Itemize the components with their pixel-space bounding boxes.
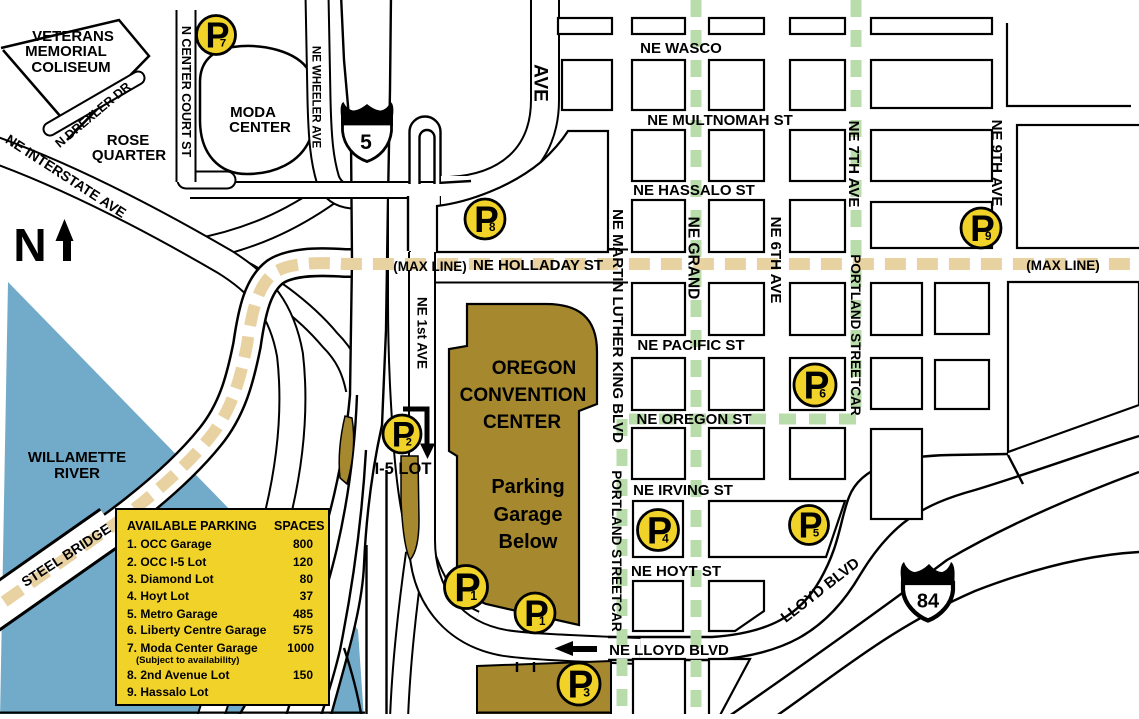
svg-text:N: N <box>13 219 46 271</box>
svg-text:120: 120 <box>293 555 313 569</box>
svg-text:3. Diamond Lot: 3. Diamond Lot <box>127 572 214 586</box>
svg-text:80: 80 <box>300 572 314 586</box>
svg-text:9: 9 <box>985 230 992 243</box>
svg-text:NE 6TH AVE: NE 6TH AVE <box>767 217 784 304</box>
svg-text:NE OREGON ST: NE OREGON ST <box>636 411 751 428</box>
svg-text:NE IRVING ST: NE IRVING ST <box>633 482 733 499</box>
svg-text:1: 1 <box>470 589 477 603</box>
svg-text:575: 575 <box>293 623 313 637</box>
svg-text:AVAILABLE PARKING: AVAILABLE PARKING <box>127 519 257 533</box>
svg-text:4: 4 <box>662 531 669 545</box>
svg-text:9. Hassalo Lot: 9. Hassalo Lot <box>127 685 208 699</box>
svg-text:37: 37 <box>300 589 314 603</box>
svg-text:I-5 LOT: I-5 LOT <box>375 460 432 478</box>
svg-text:AVE: AVE <box>530 64 551 102</box>
svg-text:Garage: Garage <box>494 504 563 526</box>
svg-text:800: 800 <box>293 537 313 551</box>
svg-text:NE 7TH AVE: NE 7TH AVE <box>845 121 862 208</box>
svg-text:P: P <box>392 415 415 454</box>
svg-text:NE HASSALO ST: NE HASSALO ST <box>633 182 755 199</box>
svg-text:NE LLOYD BLVD: NE LLOYD BLVD <box>609 642 729 659</box>
svg-text:OREGON: OREGON <box>492 358 576 379</box>
svg-text:PORTLAND STREETCAR: PORTLAND STREETCAR <box>848 254 863 415</box>
svg-text:(MAX LINE): (MAX LINE) <box>393 259 467 274</box>
svg-text:MEMORIAL: MEMORIAL <box>25 43 107 60</box>
svg-text:Below: Below <box>499 531 558 553</box>
svg-text:NE HOLLADAY ST: NE HOLLADAY ST <box>473 257 603 274</box>
svg-text:2. OCC I-5 Lot: 2. OCC I-5 Lot <box>127 555 206 569</box>
svg-text:6: 6 <box>819 387 826 401</box>
svg-text:CONVENTION: CONVENTION <box>460 385 587 406</box>
svg-text:NE GRAND: NE GRAND <box>685 217 702 300</box>
svg-text:N CENTER COURT ST: N CENTER COURT ST <box>179 26 193 158</box>
svg-text:5. Metro Garage: 5. Metro Garage <box>127 607 218 621</box>
svg-text:PORTLAND STREETCAR: PORTLAND STREETCAR <box>609 470 624 631</box>
svg-text:NE MULTNOMAH ST: NE MULTNOMAH ST <box>647 112 793 129</box>
svg-text:2: 2 <box>406 436 412 448</box>
svg-text:Parking: Parking <box>491 476 564 498</box>
svg-text:NE WHEELER AVE: NE WHEELER AVE <box>310 46 322 149</box>
svg-text:COLISEUM: COLISEUM <box>31 59 110 76</box>
svg-text:NE MARTIN LUTHER KING BLVD: NE MARTIN LUTHER KING BLVD <box>609 209 626 443</box>
svg-text:7: 7 <box>220 38 226 50</box>
svg-text:NE 1st AVE: NE 1st AVE <box>415 297 430 369</box>
svg-text:NE WASCO: NE WASCO <box>640 40 722 57</box>
svg-text:CENTER: CENTER <box>229 119 291 136</box>
svg-text:7. Moda Center Garage: 7. Moda Center Garage <box>127 641 258 655</box>
svg-text:84: 84 <box>917 591 940 613</box>
svg-text:4. Hoyt Lot: 4. Hoyt Lot <box>127 589 189 603</box>
svg-text:RIVER: RIVER <box>54 465 100 482</box>
svg-text:WILLAMETTE: WILLAMETTE <box>28 449 126 466</box>
svg-text:5: 5 <box>360 131 372 154</box>
svg-text:SPACES: SPACES <box>274 519 324 533</box>
svg-text:8. 2nd Avenue Lot: 8. 2nd Avenue Lot <box>127 668 229 682</box>
svg-text:1. OCC Garage: 1. OCC Garage <box>127 537 212 551</box>
svg-text:NE PACIFIC ST: NE PACIFIC ST <box>637 337 744 354</box>
svg-text:QUARTER: QUARTER <box>92 147 166 164</box>
svg-text:8: 8 <box>489 221 496 234</box>
svg-text:5: 5 <box>813 528 819 540</box>
svg-text:(Subject to availability): (Subject to availability) <box>136 655 239 666</box>
svg-text:NE 9TH AVE: NE 9TH AVE <box>988 120 1005 207</box>
svg-text:1: 1 <box>539 615 546 628</box>
svg-text:485: 485 <box>293 607 313 621</box>
svg-text:3: 3 <box>583 686 590 700</box>
svg-text:1000: 1000 <box>287 641 314 655</box>
svg-text:150: 150 <box>293 668 313 682</box>
svg-text:CENTER: CENTER <box>483 412 561 433</box>
svg-text:NE HOYT ST: NE HOYT ST <box>631 563 721 580</box>
svg-text:(MAX LINE): (MAX LINE) <box>1026 258 1100 273</box>
svg-text:6. Liberty Centre Garage: 6. Liberty Centre Garage <box>127 623 267 637</box>
